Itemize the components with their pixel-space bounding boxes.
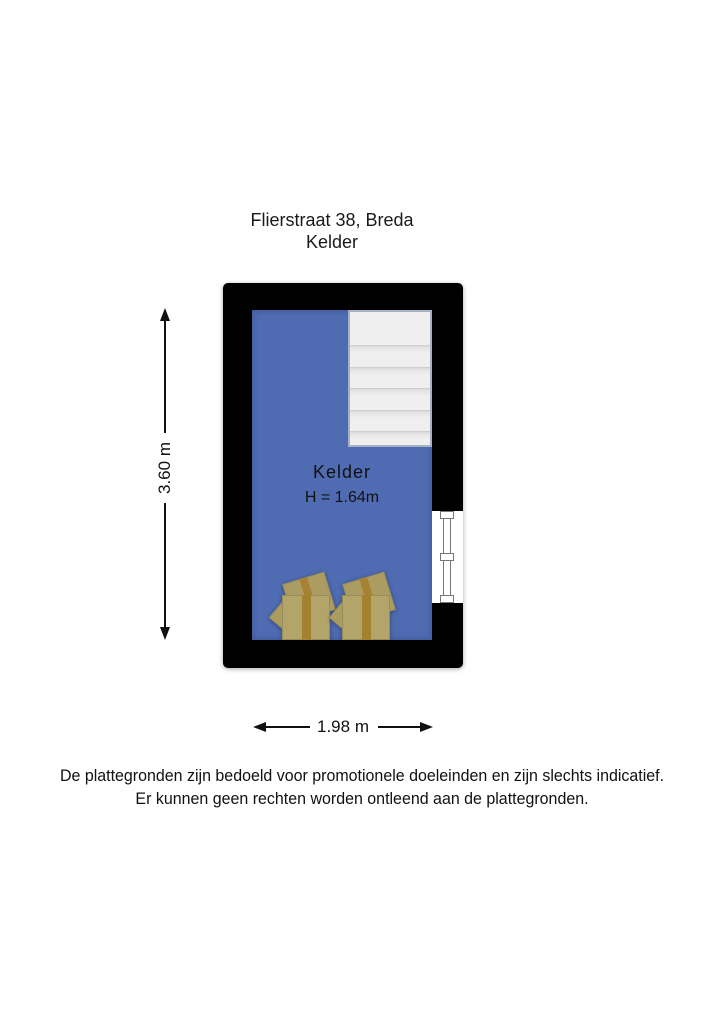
box-tape: [362, 595, 371, 640]
dimension-width-label: 1.98 m: [317, 717, 369, 737]
dimension-line: [264, 726, 310, 728]
dimension-width: 1.98 m: [253, 720, 433, 735]
disclaimer-line-1: De plattegronden zijn bedoeld voor promo…: [22, 764, 703, 787]
moving-box: [332, 575, 400, 640]
window-frame-bar: [440, 553, 454, 561]
floorplan-page: Flierstraat 38, Breda Kelder Kelder H = …: [0, 0, 724, 1024]
staircase: [348, 310, 432, 447]
stair-tread: [350, 431, 430, 445]
basement-floor: Kelder H = 1.64m: [252, 310, 432, 640]
plan-title: Flierstraat 38, Breda Kelder: [182, 209, 482, 253]
arrow-down-icon: [160, 627, 170, 640]
dimension-height-label: 3.60 m: [155, 442, 175, 494]
window-frame-bar: [440, 595, 454, 603]
exterior-walls: Kelder H = 1.64m: [223, 283, 463, 668]
box-body: [282, 595, 330, 640]
room-height-label: H = 1.64m: [252, 489, 432, 507]
stair-tread: [350, 345, 430, 367]
stair-tread: [350, 388, 430, 410]
window-frame-bar: [440, 511, 454, 519]
stair-tread: [350, 312, 430, 345]
dimension-line: [164, 503, 166, 629]
box-tape: [302, 595, 311, 640]
plan-title-address: Flierstraat 38, Breda: [182, 209, 482, 231]
room-name-label: Kelder: [252, 462, 432, 483]
window: [432, 511, 463, 603]
stair-tread: [350, 367, 430, 389]
stair-tread: [350, 410, 430, 432]
disclaimer-line-2: Er kunnen geen rechten worden ontleend a…: [22, 787, 703, 810]
dimension-height: 3.60 m: [158, 308, 172, 640]
arrow-right-icon: [420, 722, 433, 732]
dimension-line: [164, 319, 166, 433]
disclaimer: De plattegronden zijn bedoeld voor promo…: [22, 764, 703, 810]
moving-box: [272, 575, 340, 640]
plan-title-floor: Kelder: [182, 231, 482, 253]
dimension-line: [378, 726, 422, 728]
box-body: [342, 595, 390, 640]
